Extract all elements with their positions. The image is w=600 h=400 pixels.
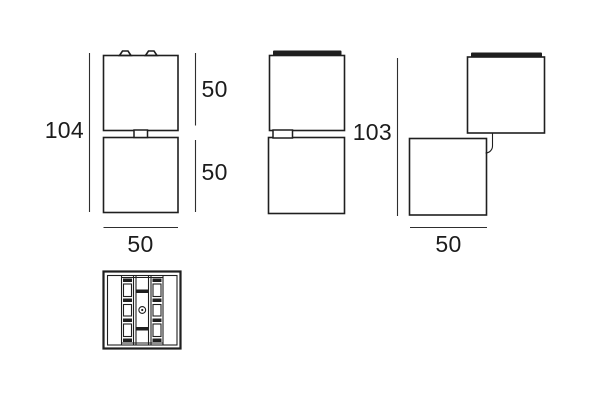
front-bottom-module-label: 50 [202, 159, 228, 185]
front-view: 104 50 50 50 [45, 51, 228, 257]
articulated-bottom-cube [410, 139, 487, 216]
front-total-height-label: 104 [45, 117, 84, 143]
center-rail-bottom-bar [136, 327, 149, 331]
front-width-label: 50 [127, 231, 153, 257]
side-top-cube [270, 56, 345, 131]
side-joint-connector [273, 130, 293, 138]
plan-pivot-dot [141, 309, 143, 311]
technical-drawing-canvas: 104 50 50 50 103 50 [0, 0, 600, 400]
side-view [269, 51, 345, 214]
plan-center-rail [136, 290, 149, 331]
articulated-width-label: 50 [435, 231, 461, 257]
articulated-top-cube [468, 57, 545, 133]
plan-ladder-right [153, 279, 162, 343]
articulated-total-height-label: 103 [353, 119, 392, 145]
front-bottom-cube [104, 138, 179, 213]
plan-ladder-left [123, 279, 132, 343]
center-rail-top-bar [136, 290, 149, 294]
plan-view [104, 272, 181, 349]
side-bottom-cube [269, 138, 345, 214]
front-joint-connector [134, 130, 148, 138]
articulated-view: 103 50 [353, 53, 545, 258]
dimension-drawing: 104 50 50 50 103 50 [0, 0, 600, 400]
front-top-module-label: 50 [202, 76, 228, 102]
front-top-cube [104, 56, 179, 131]
